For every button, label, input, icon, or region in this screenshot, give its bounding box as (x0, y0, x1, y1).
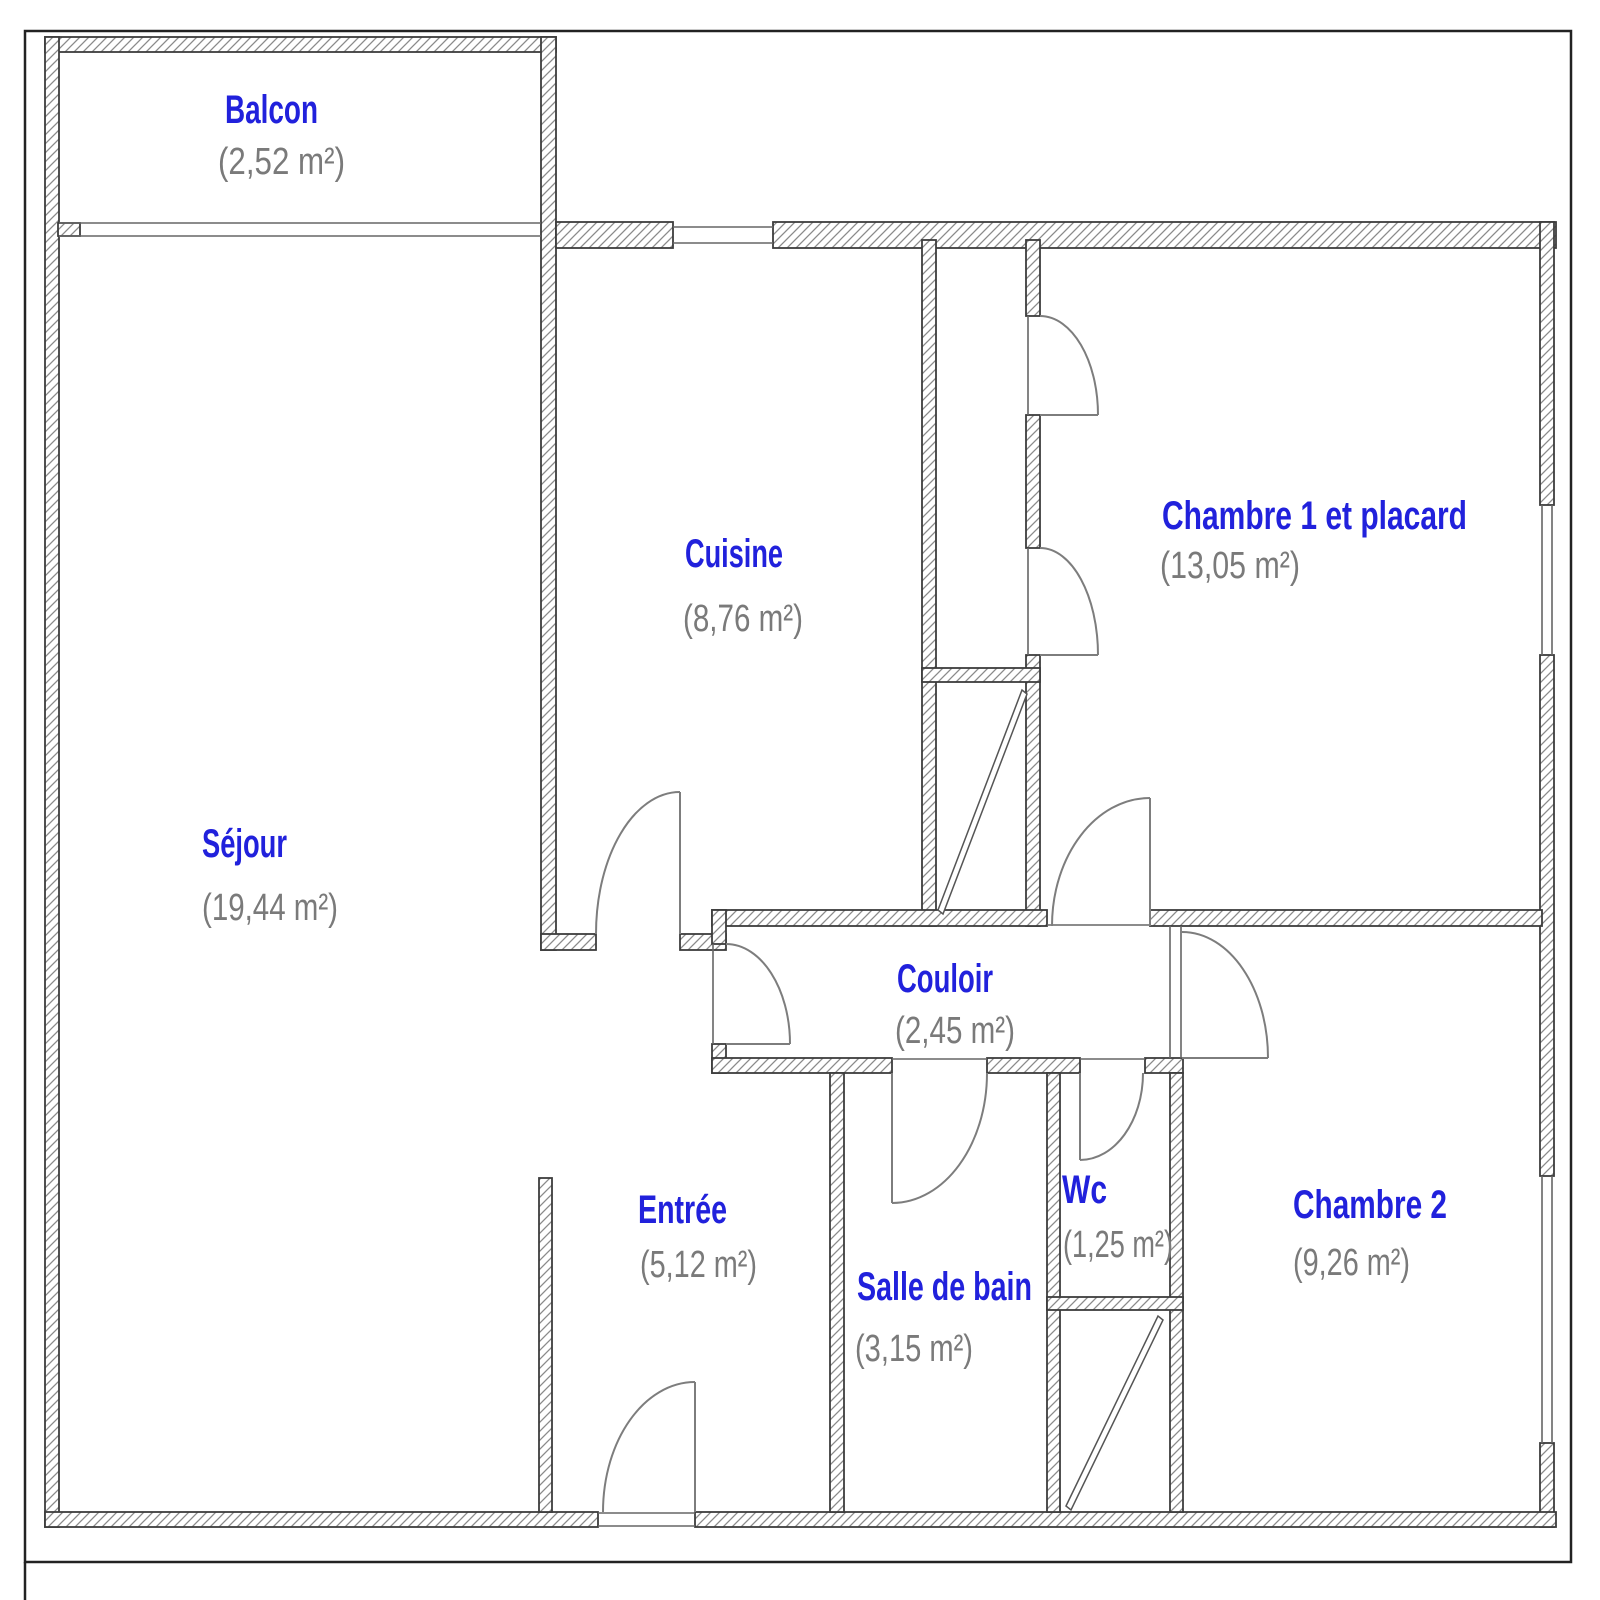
room-area-salle-de-bain: (3,15 m²) (855, 1328, 973, 1370)
room-label-cuisine: Cuisine (685, 532, 783, 576)
wall-rail-stub (58, 223, 80, 236)
room-label-balcon: Balcon (225, 88, 318, 132)
wall-placard-front-seg1 (1026, 240, 1040, 316)
wall-bottom-seg1 (45, 1512, 598, 1527)
wall-top-seg1 (556, 222, 673, 248)
floor-plan-drawing: Balcon (2,52 m²) Cuisine (8,76 m²) Chamb… (0, 0, 1600, 1600)
wall-bottom-seg2 (695, 1512, 1556, 1527)
wall-wc-bottom (1047, 1297, 1183, 1310)
wall-sejour-entree-stub (539, 1178, 552, 1512)
room-area-cuisine: (8,76 m²) (683, 598, 803, 640)
room-area-wc: (1,25 m²) (1063, 1224, 1173, 1266)
wall-balcon-right-cuisine-west (541, 37, 556, 950)
room-area-couloir: (2,45 m²) (895, 1010, 1015, 1052)
wall-couloir-top-seg1 (712, 910, 1047, 926)
wall-couloir-west-stub-upper (712, 910, 726, 944)
room-area-chambre2: (9,26 m²) (1293, 1242, 1410, 1284)
room-label-wc: Wc (1062, 1168, 1107, 1212)
wall-wc-east-chambre2-west (1170, 1073, 1183, 1512)
room-label-chambre2: Chambre 2 (1293, 1183, 1447, 1227)
wall-couloir-bottom-seg3 (1145, 1058, 1183, 1073)
room-area-balcon: (2,52 m²) (218, 141, 345, 183)
wall-west-outer (45, 37, 59, 1527)
wall-east-seg1 (1540, 222, 1554, 505)
wall-balcon-top (45, 37, 556, 52)
room-label-sejour: Séjour (202, 822, 287, 866)
wall-placard-front-seg2 (1026, 415, 1040, 548)
room-area-chambre1: (13,05 m²) (1160, 545, 1300, 587)
wall-placard-front-seg3 (1026, 655, 1040, 926)
room-area-entree: (5,12 m²) (640, 1244, 757, 1286)
room-label-salle-de-bain: Salle de bain (857, 1265, 1032, 1309)
wall-sdb-east-wc-west (1047, 1073, 1060, 1512)
room-area-sejour: (19,44 m²) (202, 887, 338, 929)
wall-sdb-west (830, 1073, 844, 1512)
wall-couloir-bottom-seg1 (712, 1058, 892, 1073)
wall-shaft-bottom (922, 668, 1040, 682)
wall-couloir-top-seg2 (1150, 910, 1542, 926)
room-label-chambre1: Chambre 1 et placard (1162, 494, 1467, 538)
room-label-entree: Entrée (638, 1188, 727, 1232)
room-label-couloir: Couloir (897, 957, 993, 1001)
wall-top-seg2 (773, 222, 1556, 248)
wall-shaft-west (922, 240, 936, 926)
floor-plan-page: Balcon (2,52 m²) Cuisine (8,76 m²) Chamb… (0, 0, 1600, 1600)
wall-couloir-bottom-seg2 (987, 1058, 1080, 1073)
wall-cuisine-bottom-seg1 (541, 934, 596, 950)
